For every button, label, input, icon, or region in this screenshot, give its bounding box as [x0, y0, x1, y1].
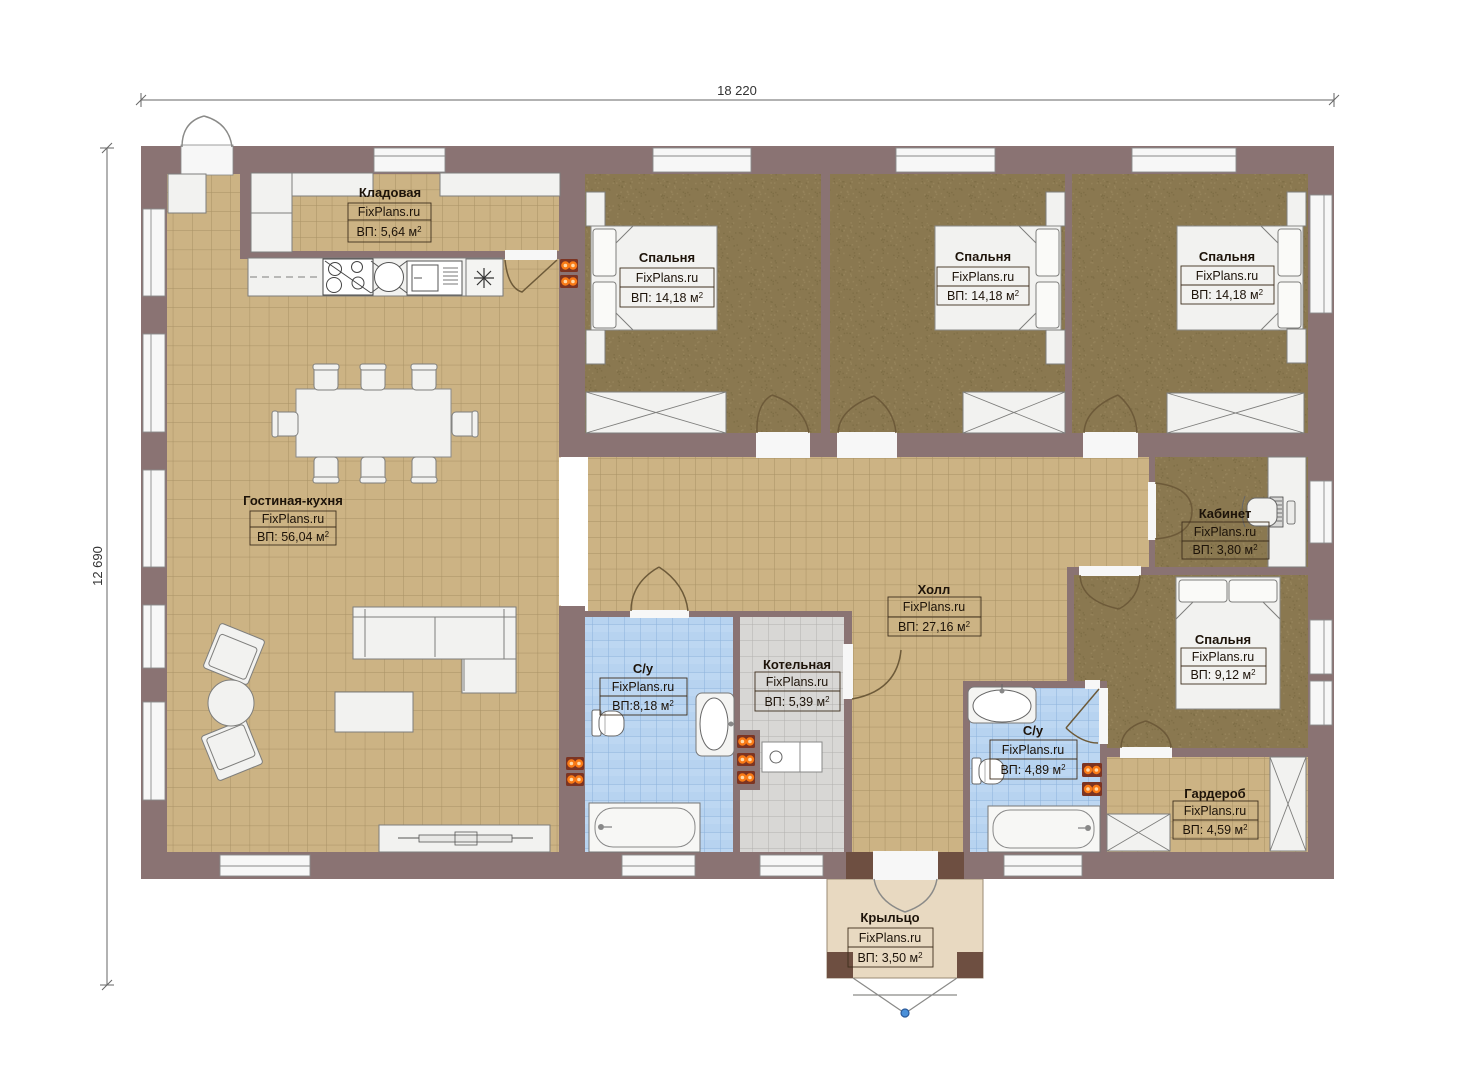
svg-text:Спальня: Спальня — [1199, 249, 1255, 264]
svg-text:FixPlans.ru: FixPlans.ru — [612, 680, 675, 694]
svg-text:Кабинет: Кабинет — [1199, 506, 1252, 521]
svg-text:ВП: 3,50 м2: ВП: 3,50 м2 — [857, 951, 923, 965]
svg-text:ВП: 14,18 м2: ВП: 14,18 м2 — [1191, 288, 1264, 302]
svg-text:FixPlans.ru: FixPlans.ru — [766, 675, 829, 689]
svg-text:ВП: 5,64 м2: ВП: 5,64 м2 — [356, 225, 422, 239]
svg-text:ВП: 4,59 м2: ВП: 4,59 м2 — [1182, 823, 1248, 837]
svg-text:Гостиная-кухня: Гостиная-кухня — [243, 493, 343, 508]
svg-text:Холл: Холл — [918, 582, 951, 597]
svg-text:ВП: 27,16 м2: ВП: 27,16 м2 — [898, 620, 971, 634]
svg-text:С/у: С/у — [633, 661, 654, 676]
svg-text:FixPlans.ru: FixPlans.ru — [859, 931, 922, 945]
svg-text:FixPlans.ru: FixPlans.ru — [358, 205, 421, 219]
svg-text:FixPlans.ru: FixPlans.ru — [636, 271, 699, 285]
svg-text:FixPlans.ru: FixPlans.ru — [1192, 650, 1255, 664]
svg-text:Котельная: Котельная — [763, 657, 831, 672]
svg-text:ВП: 5,39 м2: ВП: 5,39 м2 — [764, 695, 830, 709]
svg-text:ВП: 14,18 м2: ВП: 14,18 м2 — [947, 289, 1020, 303]
svg-text:ВП: 3,80 м2: ВП: 3,80 м2 — [1192, 543, 1258, 557]
svg-text:С/у: С/у — [1023, 723, 1044, 738]
svg-text:12 690: 12 690 — [90, 546, 105, 586]
svg-text:FixPlans.ru: FixPlans.ru — [262, 512, 325, 526]
svg-text:FixPlans.ru: FixPlans.ru — [1196, 269, 1259, 283]
svg-text:Спальня: Спальня — [955, 249, 1011, 264]
svg-text:FixPlans.ru: FixPlans.ru — [952, 270, 1015, 284]
svg-text:ВП: 56,04 м2: ВП: 56,04 м2 — [257, 530, 330, 544]
svg-text:ВП:8,18 м2: ВП:8,18 м2 — [612, 699, 674, 713]
svg-text:ВП: 4,89 м2: ВП: 4,89 м2 — [1000, 763, 1066, 777]
svg-text:ВП: 14,18 м2: ВП: 14,18 м2 — [631, 291, 704, 305]
svg-text:Кладовая: Кладовая — [359, 185, 421, 200]
svg-text:Крыльцо: Крыльцо — [860, 910, 919, 925]
svg-text:Гардероб: Гардероб — [1184, 786, 1245, 801]
svg-text:FixPlans.ru: FixPlans.ru — [903, 600, 966, 614]
svg-text:18 220: 18 220 — [717, 83, 757, 98]
svg-text:Спальня: Спальня — [639, 250, 695, 265]
svg-text:ВП: 9,12 м2: ВП: 9,12 м2 — [1190, 668, 1256, 682]
svg-text:Спальня: Спальня — [1195, 632, 1251, 647]
svg-text:FixPlans.ru: FixPlans.ru — [1194, 525, 1257, 539]
svg-text:FixPlans.ru: FixPlans.ru — [1002, 743, 1065, 757]
svg-text:FixPlans.ru: FixPlans.ru — [1184, 804, 1247, 818]
